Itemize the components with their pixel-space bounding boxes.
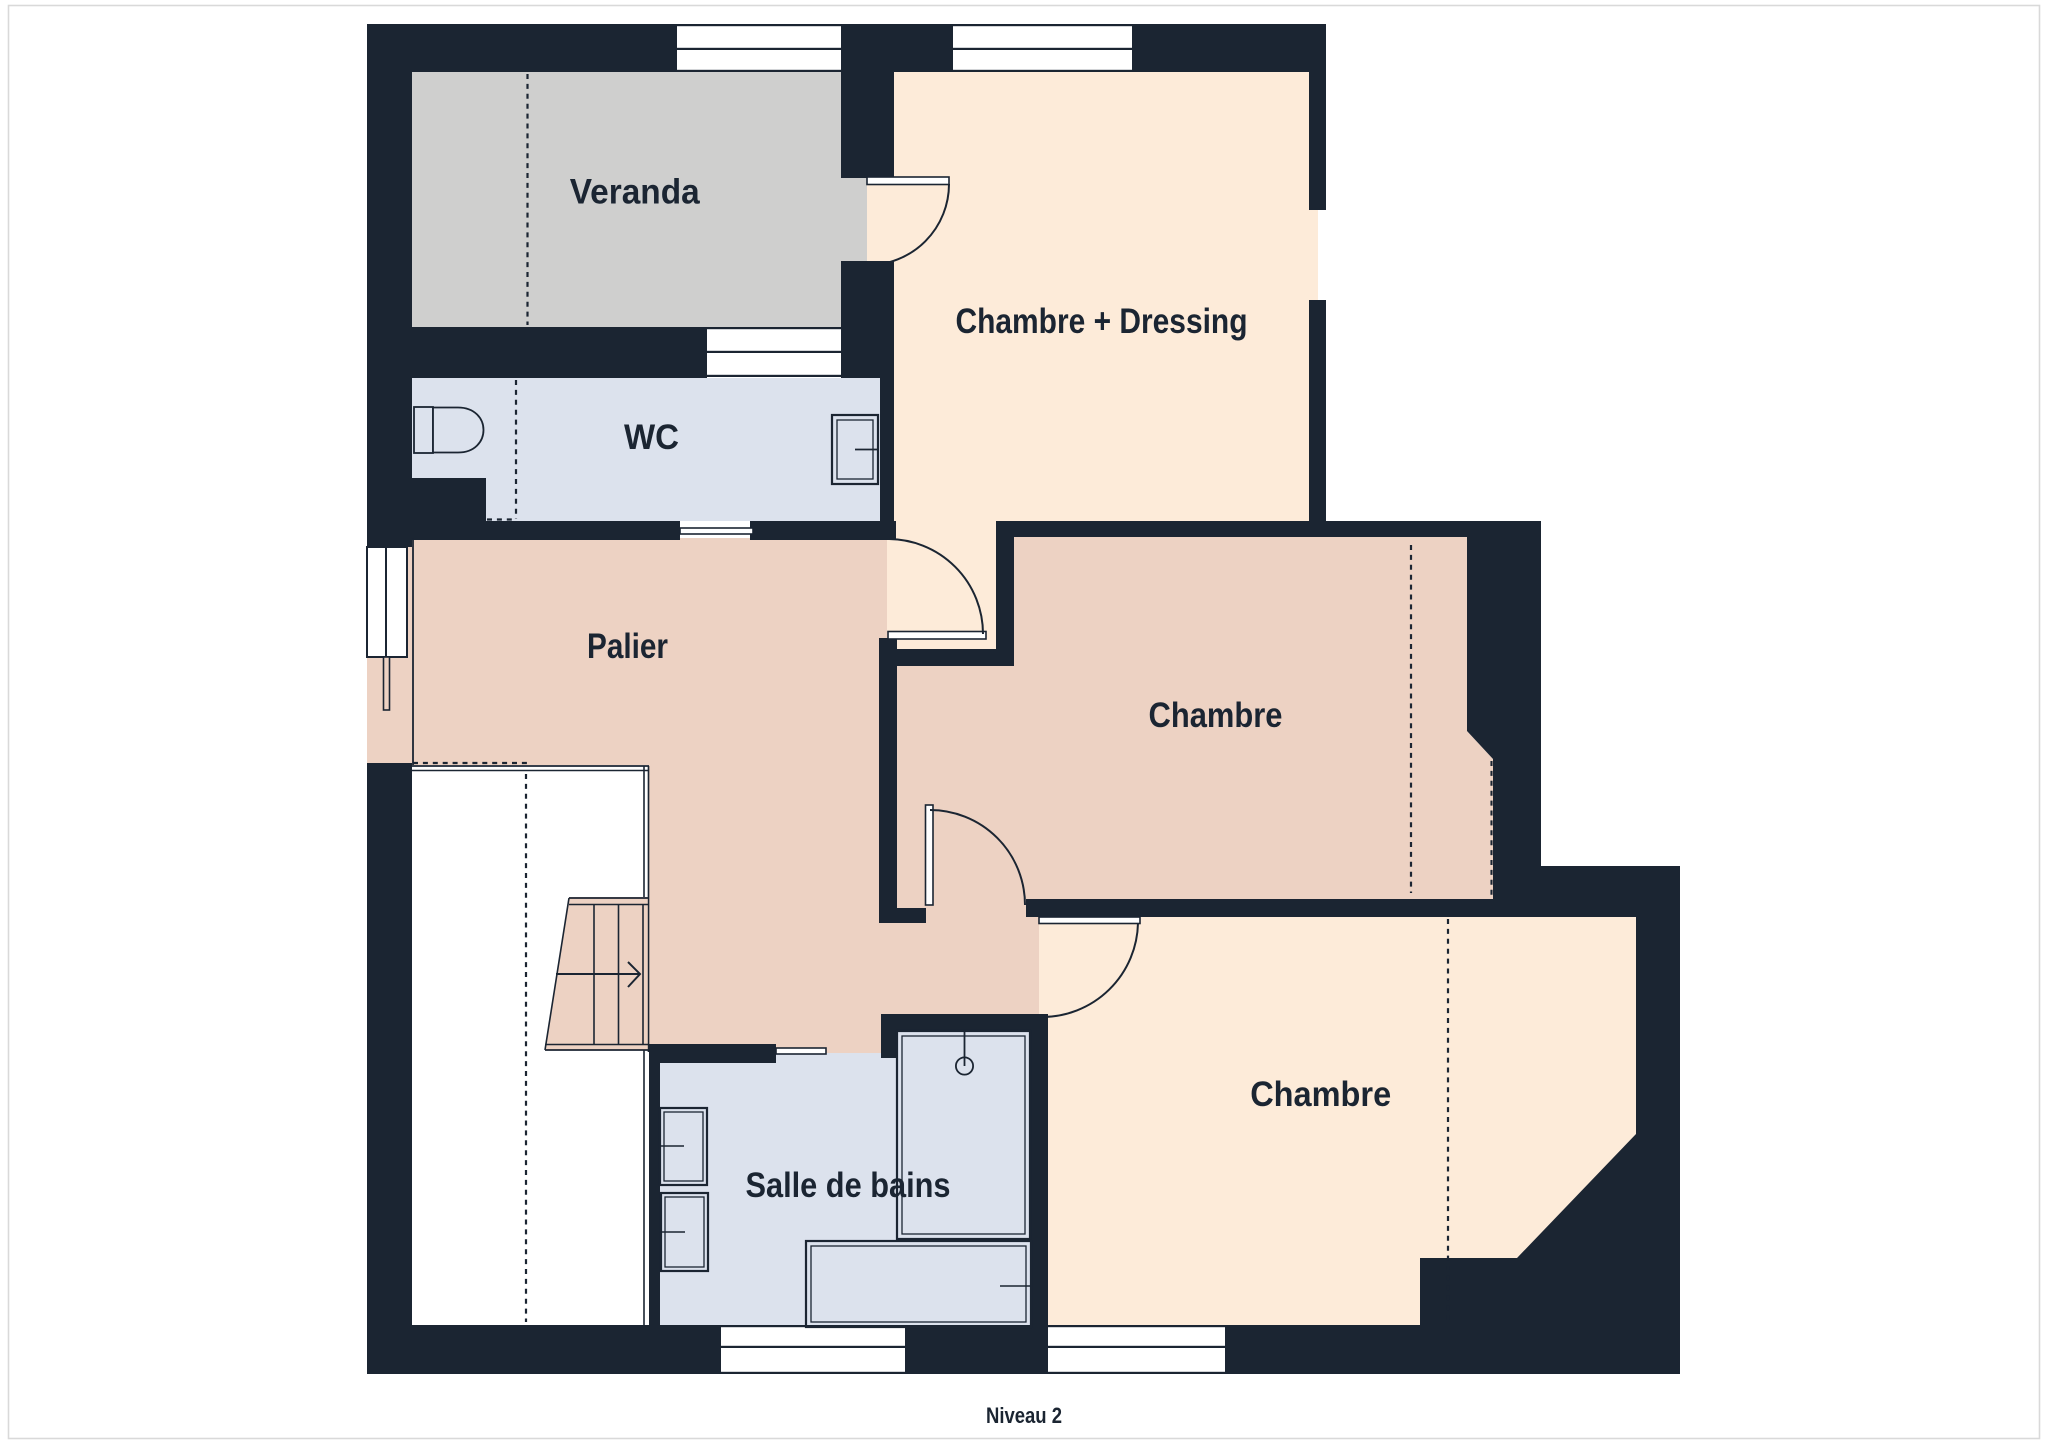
svg-text:Chambre + Dressing: Chambre + Dressing: [956, 302, 1248, 341]
svg-text:Niveau 2: Niveau 2: [986, 1403, 1062, 1428]
svg-text:Chambre: Chambre: [1250, 1075, 1391, 1114]
svg-text:Chambre: Chambre: [1149, 696, 1283, 735]
svg-text:WC: WC: [624, 418, 679, 457]
svg-text:Palier: Palier: [587, 627, 668, 666]
svg-text:Salle de bains: Salle de bains: [746, 1166, 951, 1205]
svg-text:Veranda: Veranda: [570, 173, 700, 212]
